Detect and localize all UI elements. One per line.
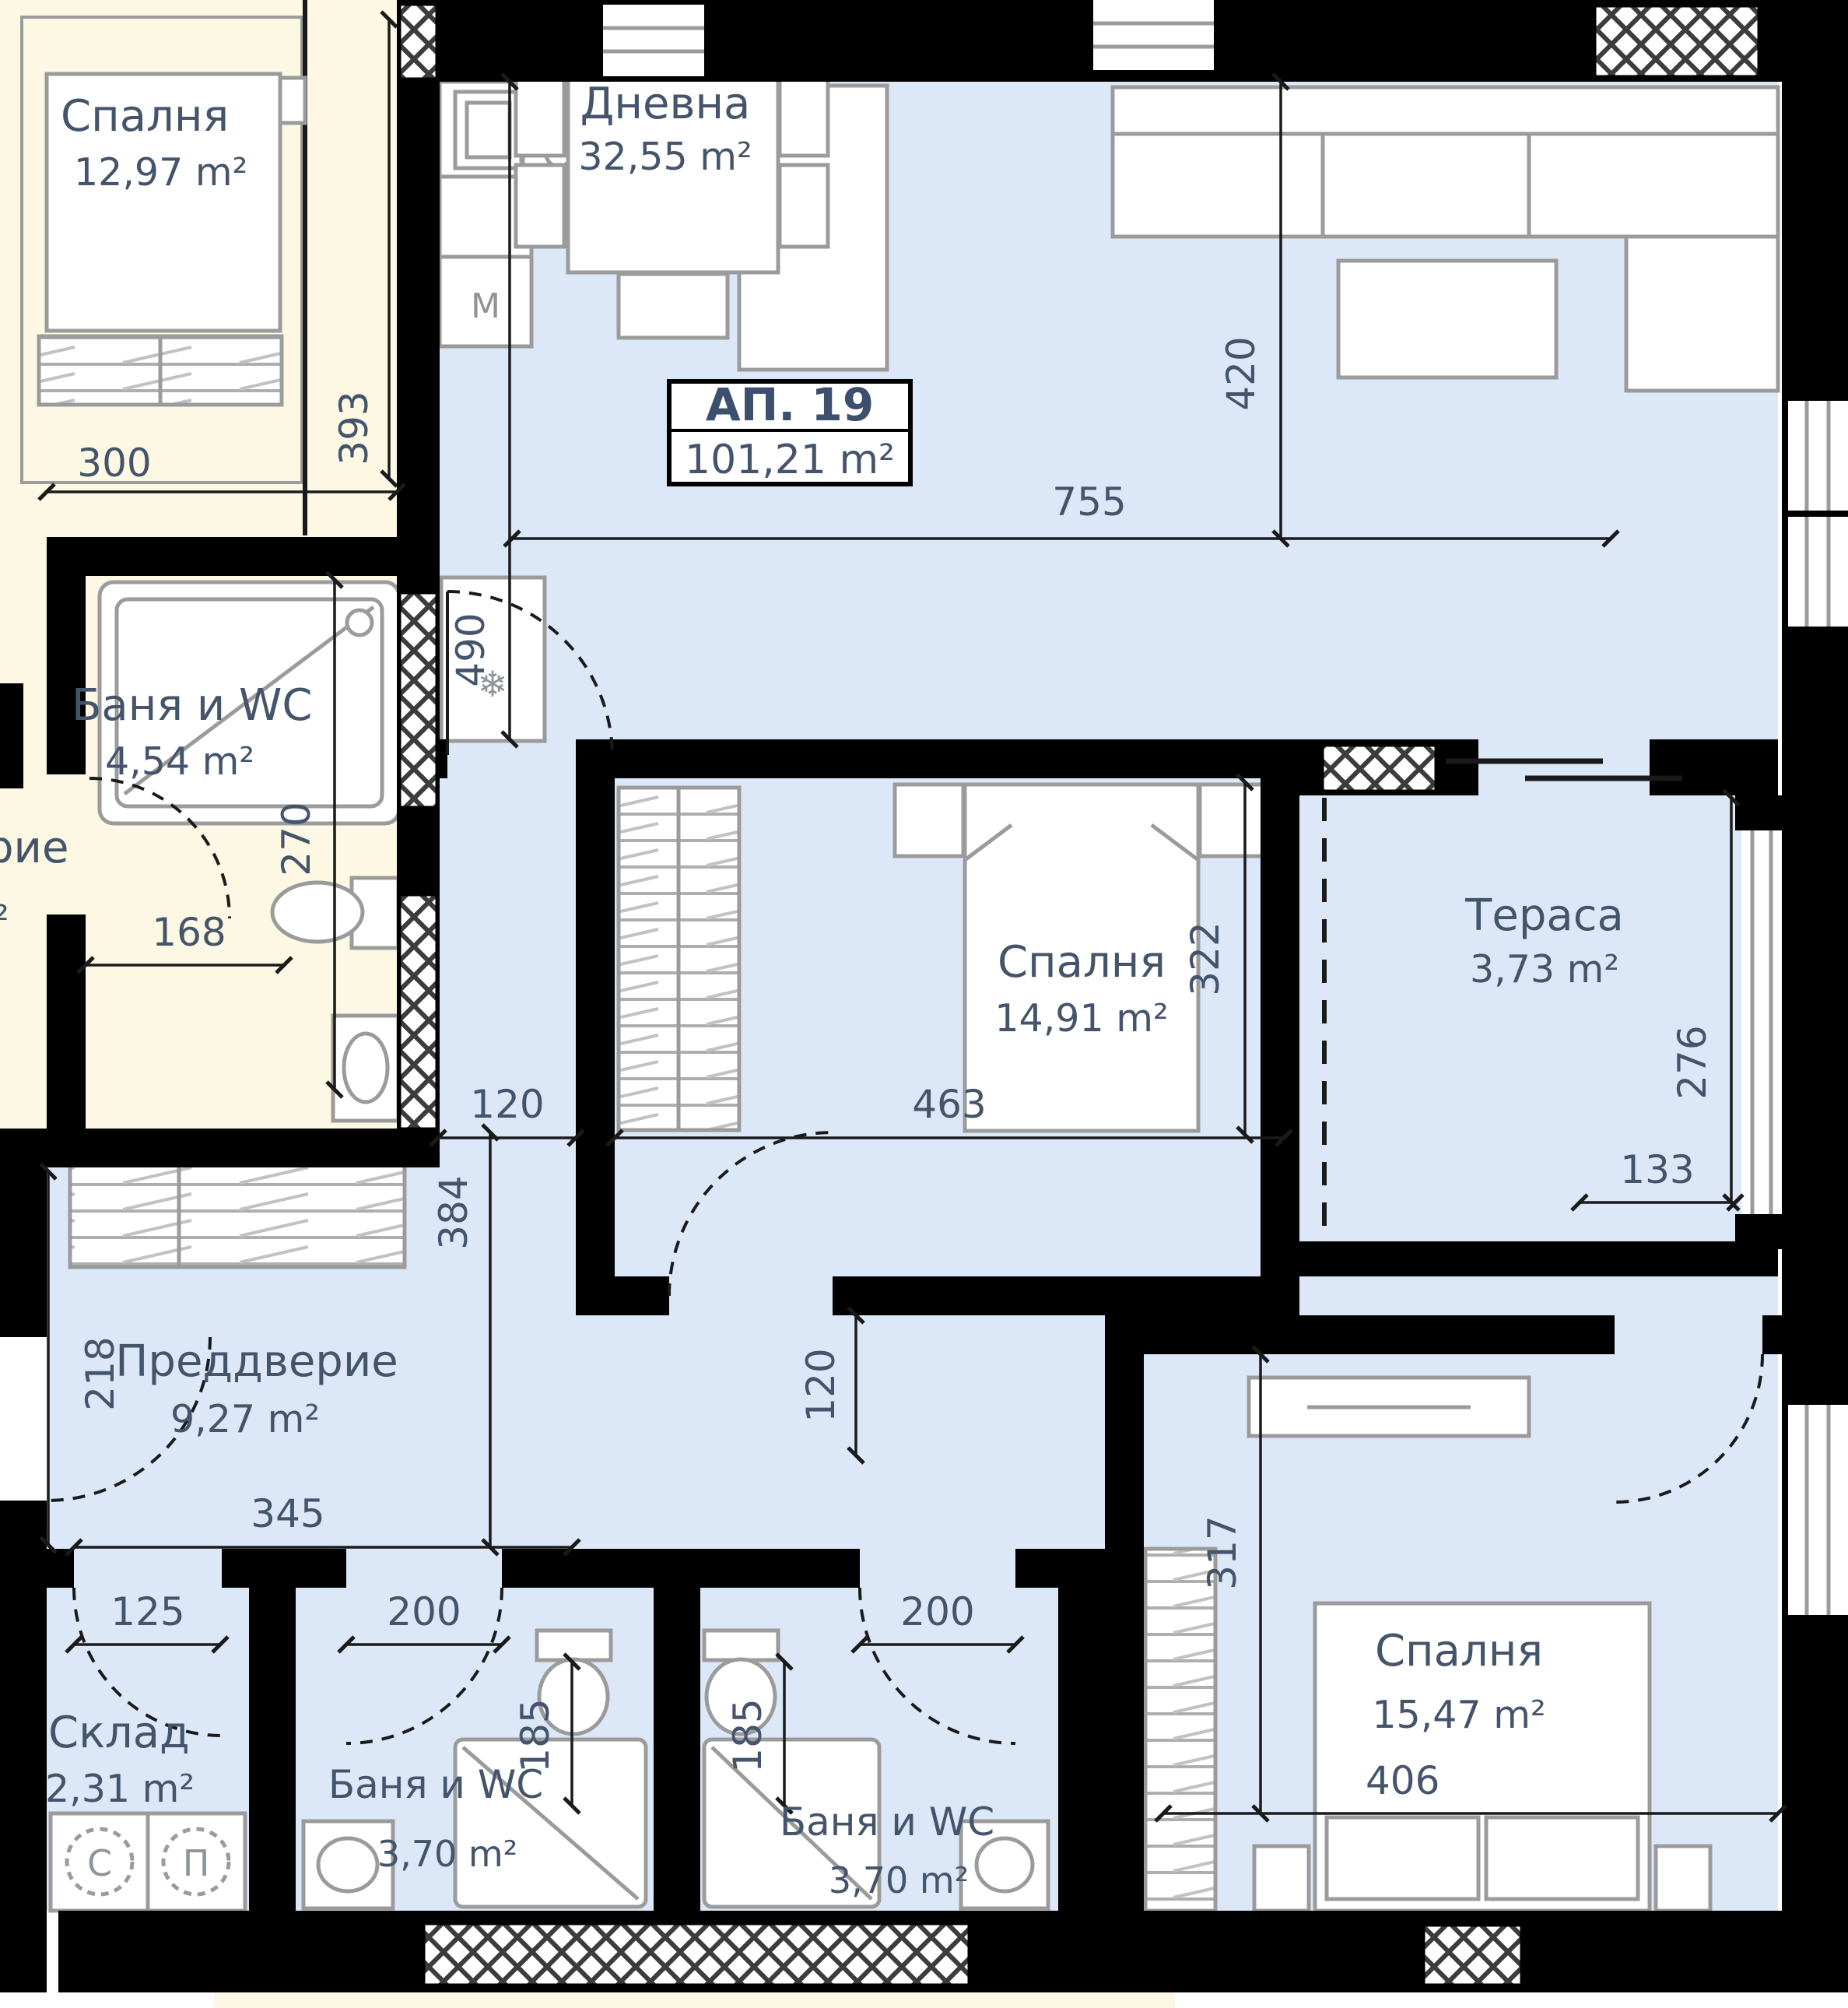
room-label-bedroom-mid: Спалня [998,937,1166,988]
dim-200b: 200 [900,1589,974,1634]
fridge-snowflake-icon: ❄ [478,663,508,705]
adjacent-area-bottom [214,1992,1175,2008]
room-area-adj-bath: 4,54 m² [105,739,254,784]
dim-270: 270 [274,802,319,876]
wall-bathrow-a [47,1549,74,1588]
wall-bedroom2-top-b [1762,1315,1782,1354]
wall-adjbath-top [47,537,440,576]
dining-chair-left-2 [516,165,564,247]
wall-bathrow-c [502,1549,860,1588]
unit-number: АП. 19 [706,378,874,431]
wall-bedroommid-left [576,739,615,1315]
dim-276: 276 [1670,1025,1715,1099]
dim-300: 300 [77,441,151,486]
wall-right [1782,0,1848,1992]
sofa-chaise [1626,237,1778,391]
bath1-sink-basin [318,1838,377,1891]
dim-185a: 185 [513,1698,558,1772]
room-area-bedroom2: 15,47 m² [1372,1693,1545,1737]
dim-420: 420 [1219,336,1264,410]
room-label-bath2: Баня и WC [780,1799,994,1845]
wall-terrace-top-b [1650,739,1778,795]
dining-chair-left-1 [516,74,564,156]
adj-sink-basin [344,1034,387,1102]
bath2-toilet-tank [704,1631,778,1660]
hatch-terrace [1323,746,1436,791]
window-right-2 [1788,1405,1848,1615]
dim-463: 463 [912,1082,986,1127]
dim-218: 218 [78,1336,123,1410]
wall-bedroom2-top-a [1105,1315,1615,1354]
adj-bathtub-drain [347,610,372,635]
wall-bedroommid-bot-b [833,1276,1299,1315]
dim-120b: 120 [798,1348,843,1422]
wall-bathrow-b [222,1549,346,1588]
room-label-adj-partial: рие [0,823,68,873]
bedroom-mid-nightstand-r [1200,785,1268,856]
wall-bathrow-d [1015,1549,1105,1588]
room-label-storage: Склад [48,1708,190,1758]
washer-symbol: С [87,1842,112,1884]
room-area-hall: 9,27 m² [170,1397,320,1441]
room-label-adj-partial2: м² [0,897,9,942]
window-top-1 [603,5,704,76]
dim-133: 133 [1620,1147,1694,1192]
wall-left-stub [0,683,23,788]
room-label-living: Дневна [580,79,751,129]
window-right-1 [1788,401,1848,627]
appliance-m-symbol: М [471,286,500,326]
wall-bedroommid-bot-a [576,1276,669,1315]
bath2-sink-basin [977,1838,1033,1891]
dim-393: 393 [331,391,377,465]
dim-120a: 120 [470,1082,544,1127]
floor-plan-svg: АП. 19 101,21 m² Спалня 12,97 m² Баня и … [0,0,1848,2008]
bedroom2-nightstand-l [1254,1846,1309,1911]
room-area-terrace: 3,73 m² [1470,947,1619,992]
hatch-top-right [1595,6,1759,76]
dim-317: 317 [1200,1515,1245,1589]
dining-chair-bottom [619,274,728,338]
room-label-terrace: Тераса [1464,890,1624,941]
room-dim-bedroom2-406: 406 [1366,1758,1439,1803]
hatch-top-left-col [400,5,437,79]
window-terrace-right [1741,830,1782,1214]
room-area-living: 32,55 m² [578,135,752,179]
dim-345: 345 [251,1491,324,1536]
dining-chair-right-2 [780,165,828,247]
room-area-bedroom-mid: 14,91 m² [994,996,1168,1041]
room-area-adj-bedroom: 12,97 m² [74,150,247,195]
kitchen-sink-basin [467,103,510,157]
bedroom2-nightstand-r [1656,1846,1710,1911]
dim-168: 168 [152,910,226,955]
sofa-body [1113,87,1778,237]
bedroom2-pillow-r [1486,1817,1638,1899]
room-label-adj-bedroom: Спалня [61,91,229,142]
room-area-storage: 2,31 m² [45,1767,195,1811]
dim-755: 755 [1052,479,1126,525]
wall-hall-left-a [0,1167,47,1337]
coffee-table [1338,261,1556,377]
wall-storage-right [249,1588,296,1911]
wall-bath-divider [654,1588,700,1911]
wall-terrace-bottom [1299,1241,1778,1276]
wall-bedroom2-left [1105,1354,1144,1911]
hall-wardrobe [70,1150,405,1267]
window-top-2 [1093,0,1214,70]
room-area-bath1: 3,70 m² [377,1833,517,1875]
dining-chair-right-1 [780,74,828,156]
hatch-bottom-a [424,1924,969,1985]
dim-125: 125 [110,1589,184,1634]
dim-322: 322 [1183,922,1228,995]
wall-hall-top [0,1129,440,1167]
wall-adjbath-left-b [47,914,86,1132]
dim-200a: 200 [387,1589,461,1634]
hatch-bottom-b [1424,1926,1521,1985]
unit-area: 101,21 m² [685,437,895,483]
adj-toilet-bowl [272,883,363,942]
floor-plan-canvas: АП. 19 101,21 m² Спалня 12,97 m² Баня и … [0,0,1848,2008]
terrace-sliding-door [1446,741,1682,794]
adj-nightstand [280,78,305,123]
room-label-adj-bath: Баня и WC [72,680,313,731]
wall-kitchen-left [397,0,440,576]
room-label-bedroom2: Спалня [1375,1626,1543,1676]
unit-label-box: АП. 19 101,21 m² [669,378,910,484]
bedroom2-pillow-l [1327,1817,1478,1899]
bedroom2-wardrobe [1145,1549,1215,1911]
dryer-symbol: П [183,1842,210,1884]
wall-terrace-right-stub-b [1735,1214,1782,1249]
hatch-left-a [400,593,437,807]
hatch-left-b [400,895,437,1129]
dim-384: 384 [431,1175,476,1249]
wall-bedroom-terrace [1261,778,1299,1315]
room-label-bath1: Баня и WC [328,1762,543,1807]
dim-185b: 185 [725,1698,770,1772]
wall-bedroommid-top-b [611,739,1299,778]
room-label-hall: Преддверие [115,1336,398,1387]
wall-hall-left-b [0,1501,47,1992]
wall-adjbath-left-a [47,576,86,774]
wall-terrace-right-stub-a [1735,795,1782,830]
room-area-bath2: 3,70 m² [829,1859,969,1901]
bedroom-mid-nightstand-l [895,785,963,856]
bath1-toilet-tank [537,1631,611,1660]
wall-bath2-right [1058,1588,1105,1911]
